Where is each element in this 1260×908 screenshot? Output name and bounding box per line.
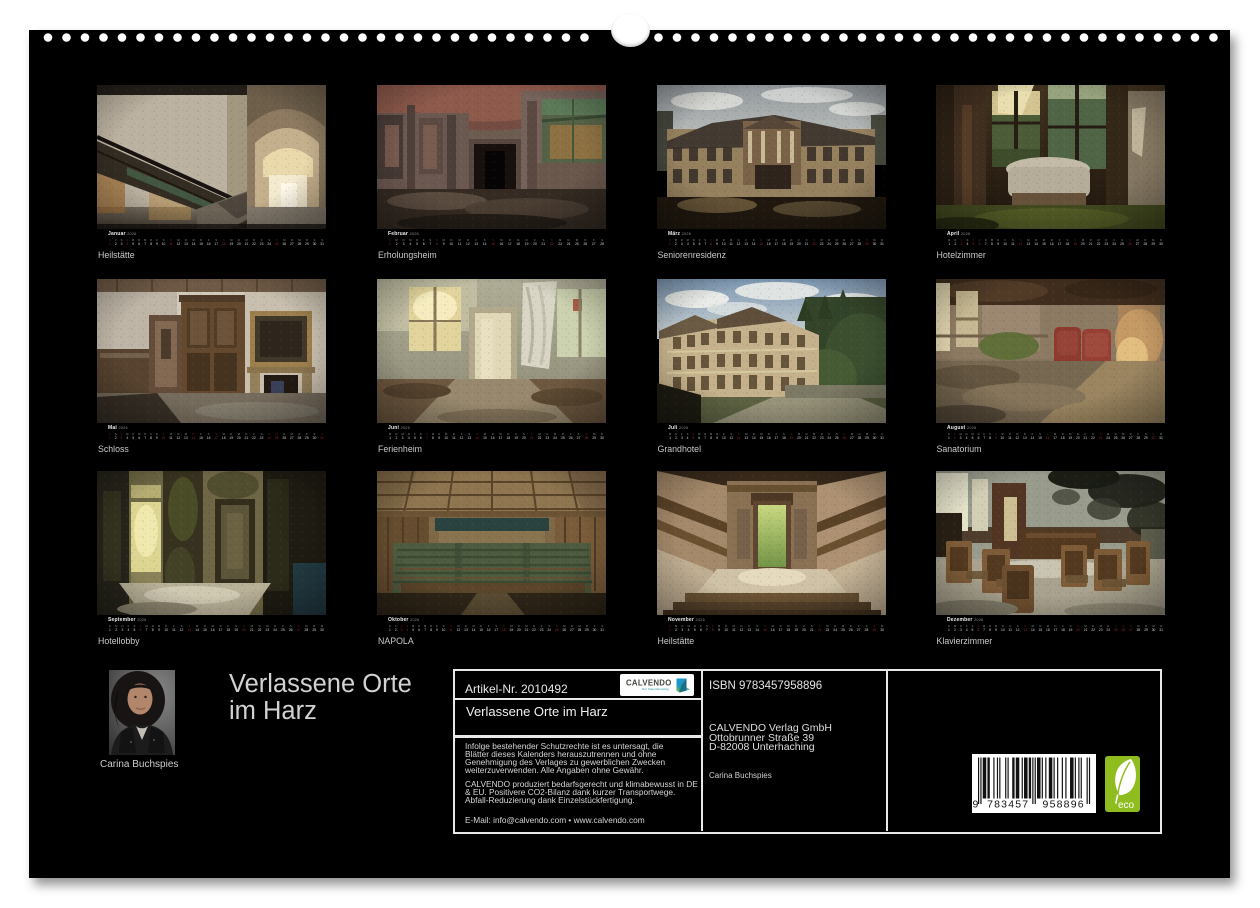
svg-text:9: 9 bbox=[972, 798, 978, 810]
svg-text:783457: 783457 bbox=[987, 798, 1029, 810]
svg-text:eco: eco bbox=[1118, 800, 1135, 811]
svg-text:Der Kalenderverlag: Der Kalenderverlag bbox=[642, 687, 669, 691]
svg-text:CALVENDO: CALVENDO bbox=[626, 678, 672, 687]
svg-text:958896: 958896 bbox=[1042, 798, 1084, 810]
